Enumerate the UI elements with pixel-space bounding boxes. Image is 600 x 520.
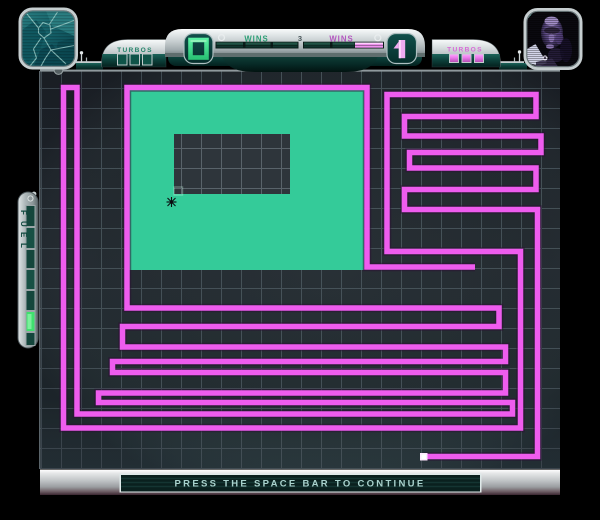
svg-text:F: F: [19, 210, 28, 215]
svg-text:E: E: [19, 232, 28, 238]
svg-text:3: 3: [298, 34, 302, 43]
svg-text:U: U: [19, 221, 28, 227]
svg-text:WINS: WINS: [329, 34, 353, 43]
svg-text:L: L: [19, 243, 28, 248]
svg-text:TURBOS: TURBOS: [117, 47, 153, 54]
svg-text:WINS: WINS: [244, 34, 268, 43]
svg-text:PRESS THE SPACE BAR TO CONTINU: PRESS THE SPACE BAR TO CONTINUE: [175, 479, 426, 490]
svg-text:TURBOS: TURBOS: [447, 47, 483, 54]
